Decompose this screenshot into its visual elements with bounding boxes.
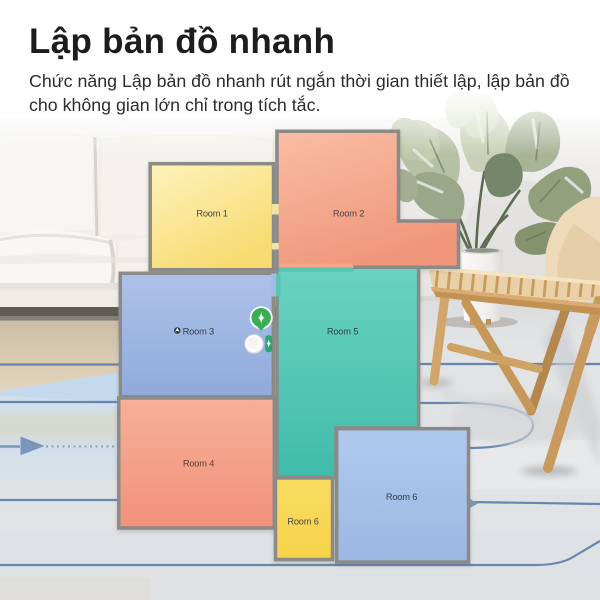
svg-text:Room 1: Room 1 xyxy=(196,209,227,219)
svg-text:Room 6: Room 6 xyxy=(287,517,318,527)
svg-text:Room 5: Room 5 xyxy=(327,327,358,337)
svg-text:Room 6: Room 6 xyxy=(386,492,417,502)
svg-text:Room 4: Room 4 xyxy=(183,459,214,469)
svg-text:Room 3: Room 3 xyxy=(183,327,214,337)
svg-text:Room 2: Room 2 xyxy=(333,209,364,219)
